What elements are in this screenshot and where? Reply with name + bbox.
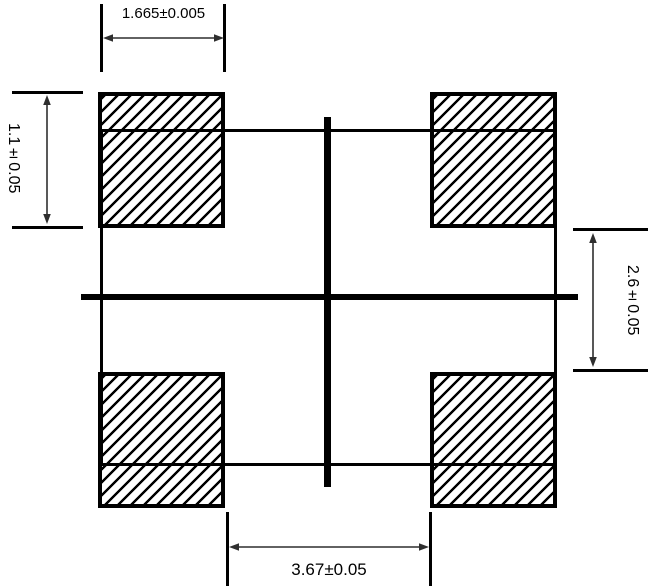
dim-right-extension-top: [573, 228, 648, 231]
dim-left-extension-top: [12, 91, 83, 94]
dim-right-double-arrow-icon: [587, 233, 599, 367]
centerline-vertical: [324, 117, 331, 487]
dim-bottom-extension-right: [429, 512, 432, 586]
dim-right-label: 2.6±0.05: [623, 236, 641, 364]
dim-top-double-arrow-icon: [103, 32, 224, 44]
dim-left-label: 1.1±0.05: [4, 94, 22, 222]
engineering-drawing: 1.665±0.005 1.1±0.05 2.6±0.05 3.67±0.05: [0, 0, 655, 588]
dim-left-extension-bottom: [12, 226, 83, 229]
dim-bottom-double-arrow-icon: [229, 541, 429, 553]
dim-right-extension-bottom: [573, 369, 648, 372]
dim-top-label: 1.665±0.005: [103, 5, 224, 22]
dim-left-double-arrow-icon: [41, 95, 53, 224]
dim-bottom-label: 3.67±0.05: [229, 560, 429, 580]
